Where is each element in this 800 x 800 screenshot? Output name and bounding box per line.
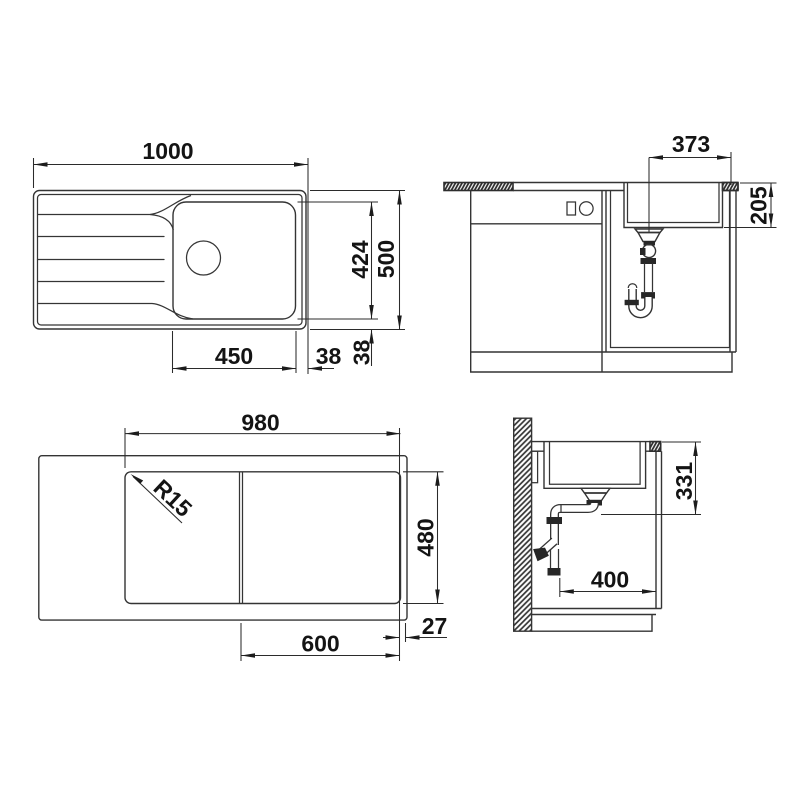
svg-text:400: 400 <box>591 567 629 593</box>
svg-text:500: 500 <box>373 240 399 278</box>
svg-text:1000: 1000 <box>142 138 193 164</box>
svg-text:424: 424 <box>347 240 373 279</box>
svg-text:480: 480 <box>413 518 439 556</box>
svg-text:373: 373 <box>672 131 710 157</box>
svg-text:205: 205 <box>746 186 772 225</box>
svg-text:980: 980 <box>241 410 279 436</box>
svg-text:38: 38 <box>349 340 375 366</box>
svg-text:38: 38 <box>316 343 342 369</box>
svg-text:27: 27 <box>422 613 448 639</box>
svg-text:600: 600 <box>301 631 339 657</box>
svg-text:331: 331 <box>671 462 697 501</box>
svg-text:450: 450 <box>215 343 253 369</box>
